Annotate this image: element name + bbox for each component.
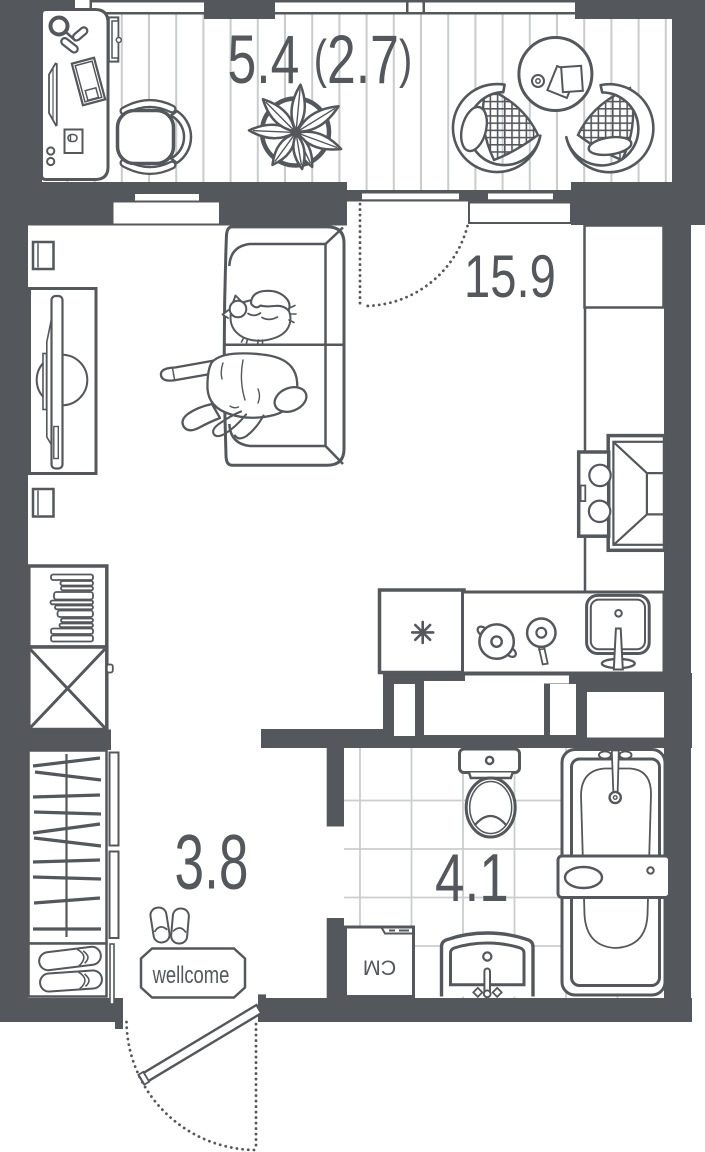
svg-text:3.8: 3.8 [174,819,248,905]
svg-text:4.1: 4.1 [435,840,509,916]
svg-text:15.9: 15.9 [464,243,556,310]
svg-text:wellcome: wellcome [152,960,230,988]
svg-text:CM: CM [363,956,396,980]
svg-text:5.4 (2.7): 5.4 (2.7) [228,21,413,98]
